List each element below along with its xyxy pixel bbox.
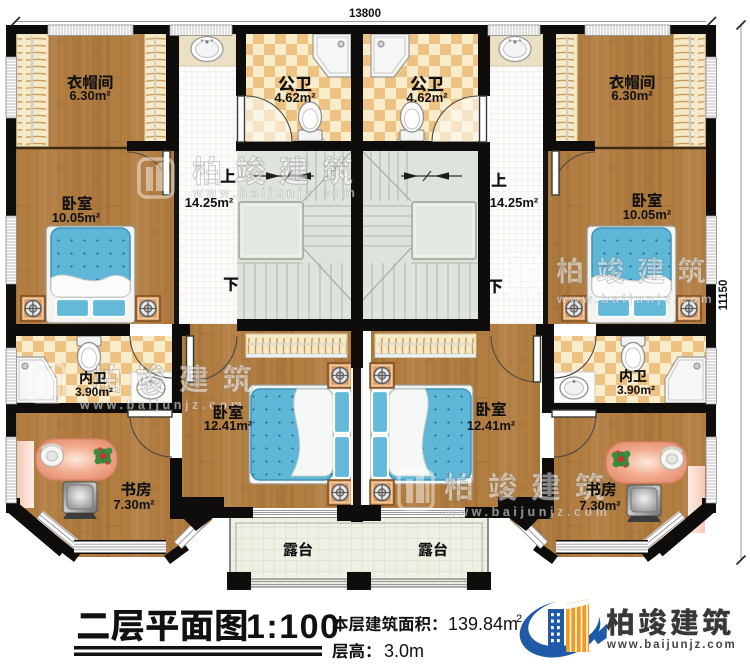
- svg-text:14.25m²: 14.25m²: [185, 195, 234, 210]
- svg-text:3.90m²: 3.90m²: [617, 383, 655, 397]
- svg-text:12.41m²: 12.41m²: [204, 418, 253, 433]
- svg-text:12.41m²: 12.41m²: [467, 418, 516, 433]
- svg-text:2: 2: [516, 613, 522, 625]
- svg-text:14.25m²: 14.25m²: [490, 195, 539, 210]
- svg-text:6.30m²: 6.30m²: [611, 88, 653, 103]
- svg-text:3.90m²: 3.90m²: [75, 385, 113, 399]
- svg-text:4.62m²: 4.62m²: [274, 90, 316, 105]
- svg-text:139.84m: 139.84m: [448, 614, 518, 634]
- svg-text:7.30m²: 7.30m²: [113, 497, 155, 512]
- svg-text:6.30m²: 6.30m²: [69, 88, 111, 103]
- svg-text:www.baijunjz.com: www.baijunjz.com: [606, 639, 737, 651]
- svg-text:10.05m²: 10.05m²: [52, 210, 101, 225]
- svg-text:11150: 11150: [718, 280, 730, 311]
- svg-text:3.0m: 3.0m: [384, 641, 424, 661]
- svg-text:1:100: 1:100: [246, 608, 340, 646]
- svg-text:4.62m²: 4.62m²: [406, 90, 448, 105]
- svg-text:www.baijunjz.com: www.baijunjz.com: [556, 292, 715, 306]
- svg-text:13800: 13800: [349, 8, 381, 20]
- svg-text:10.05m²: 10.05m²: [623, 207, 672, 222]
- svg-text:7.30m²: 7.30m²: [579, 498, 621, 513]
